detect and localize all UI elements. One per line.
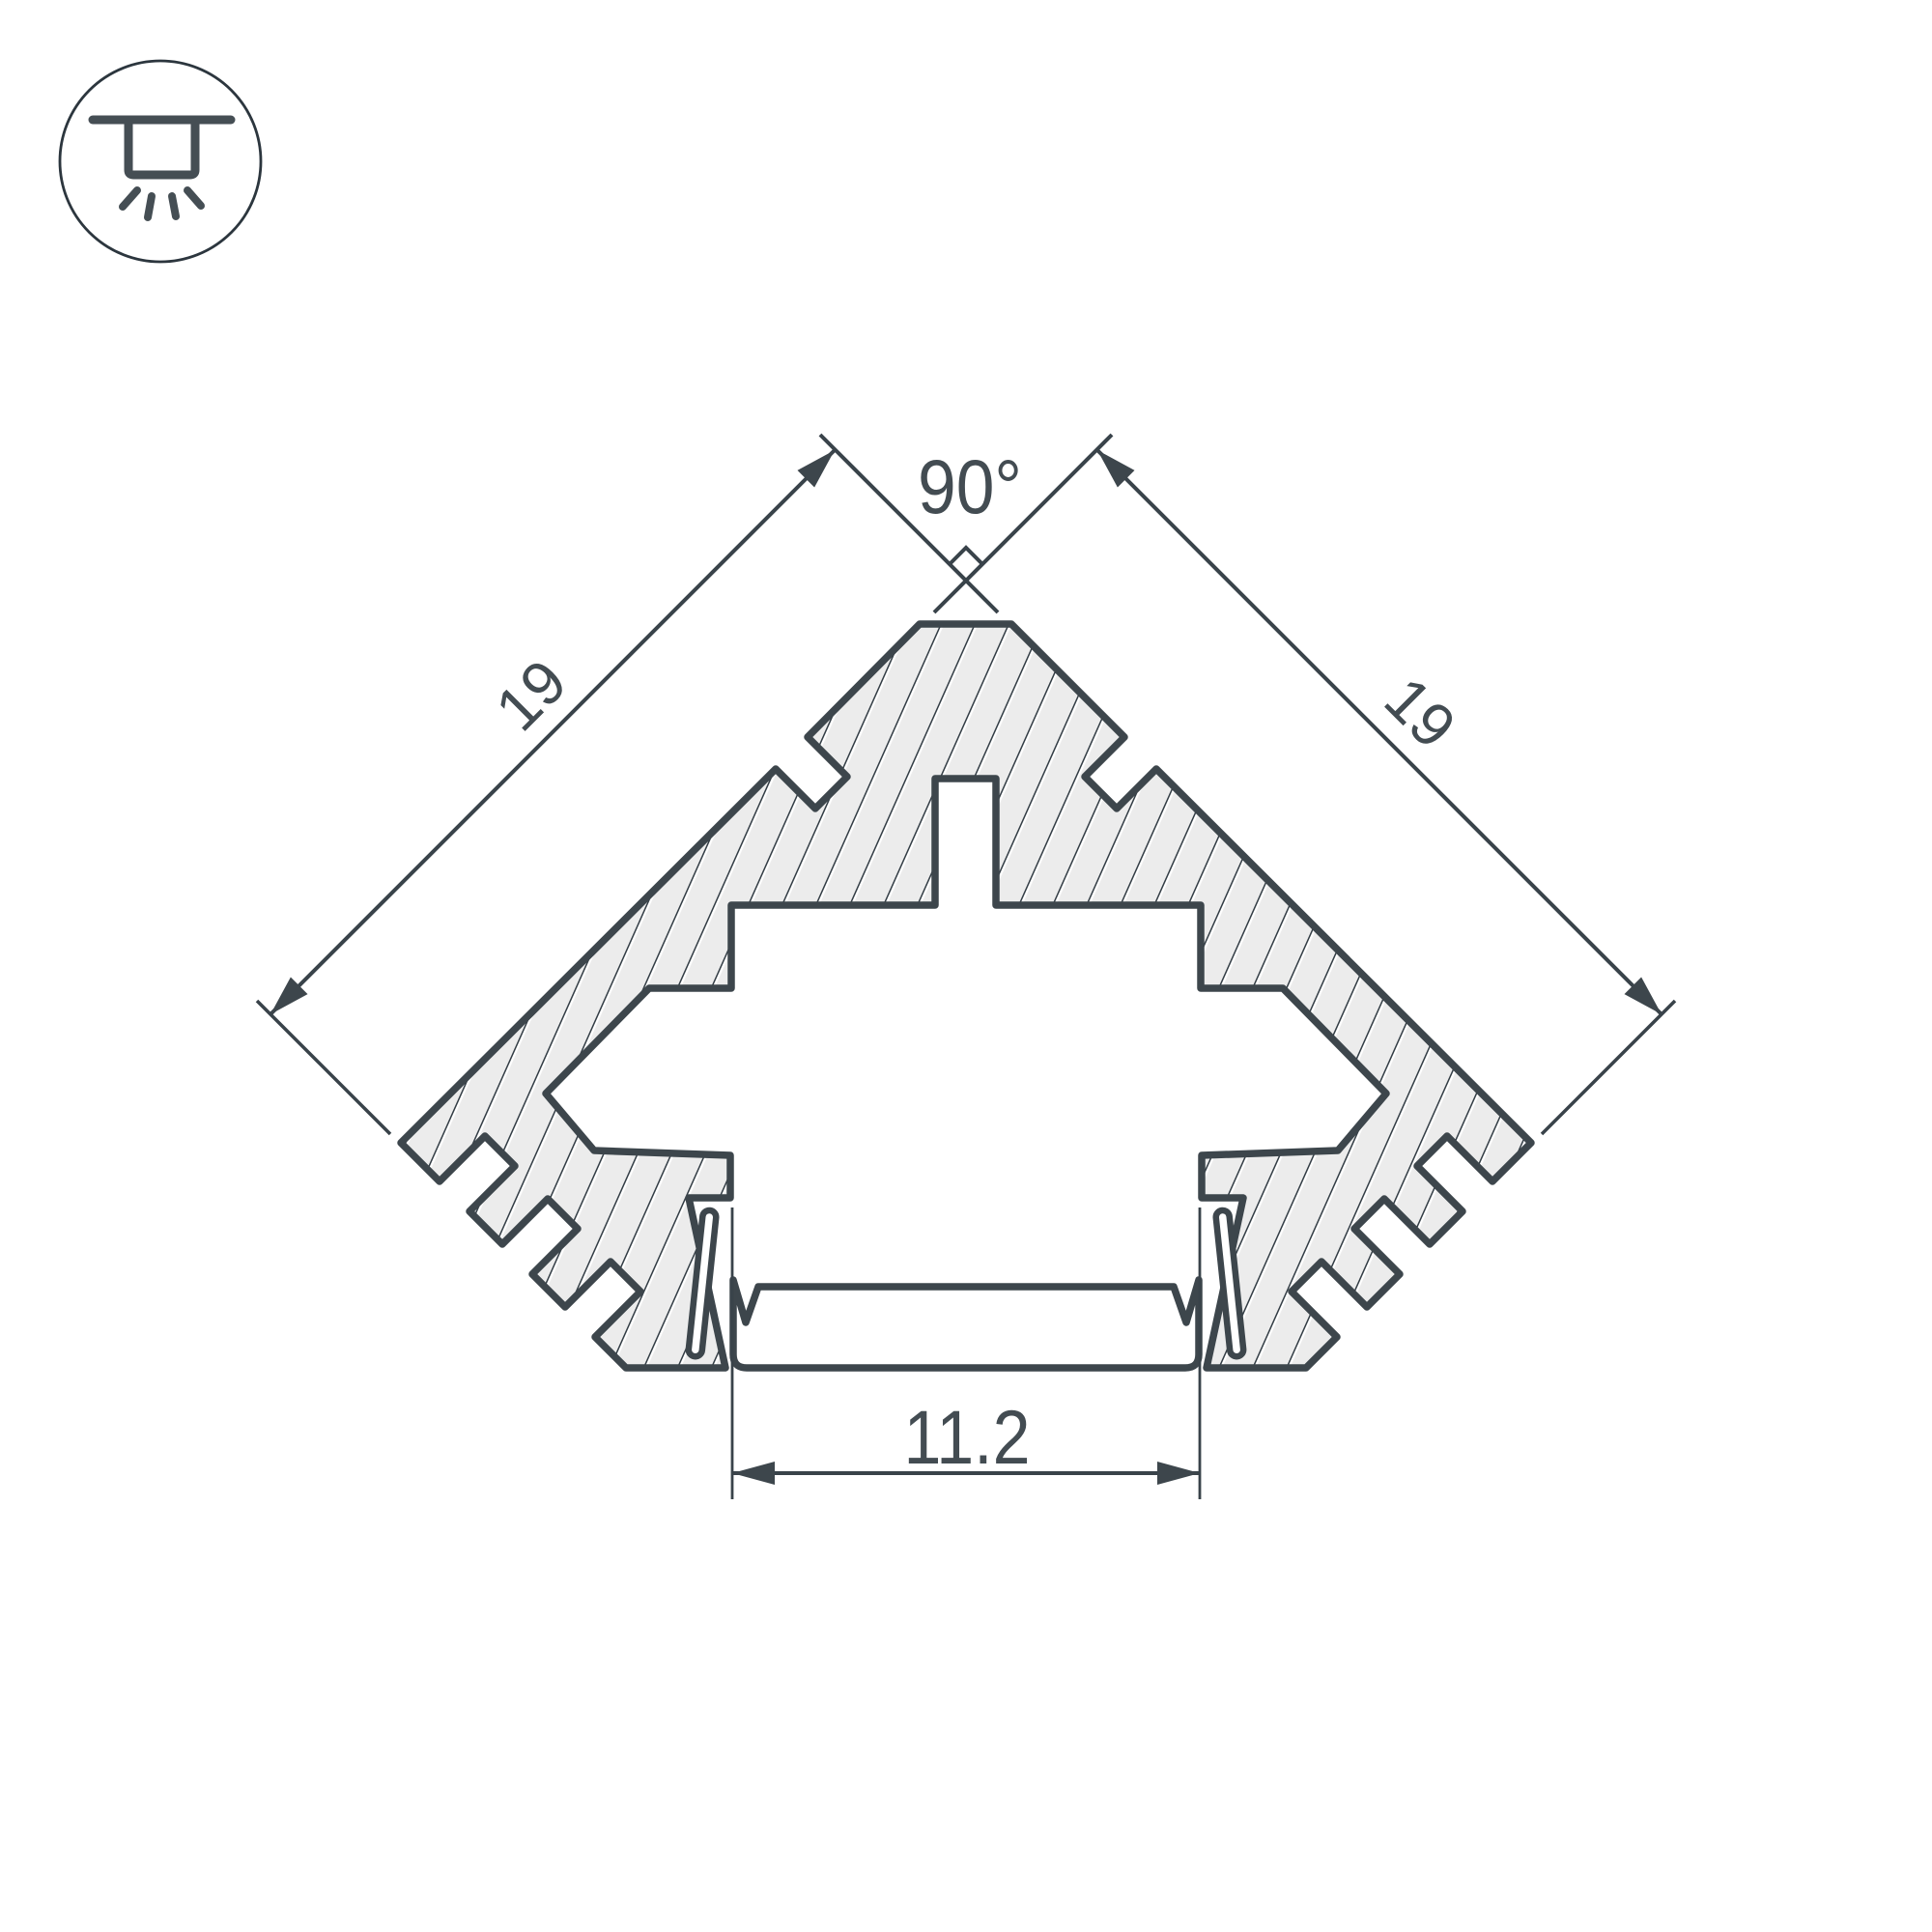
svg-text:90°: 90° — [918, 443, 1022, 529]
svg-text:11.2: 11.2 — [904, 1394, 1031, 1480]
